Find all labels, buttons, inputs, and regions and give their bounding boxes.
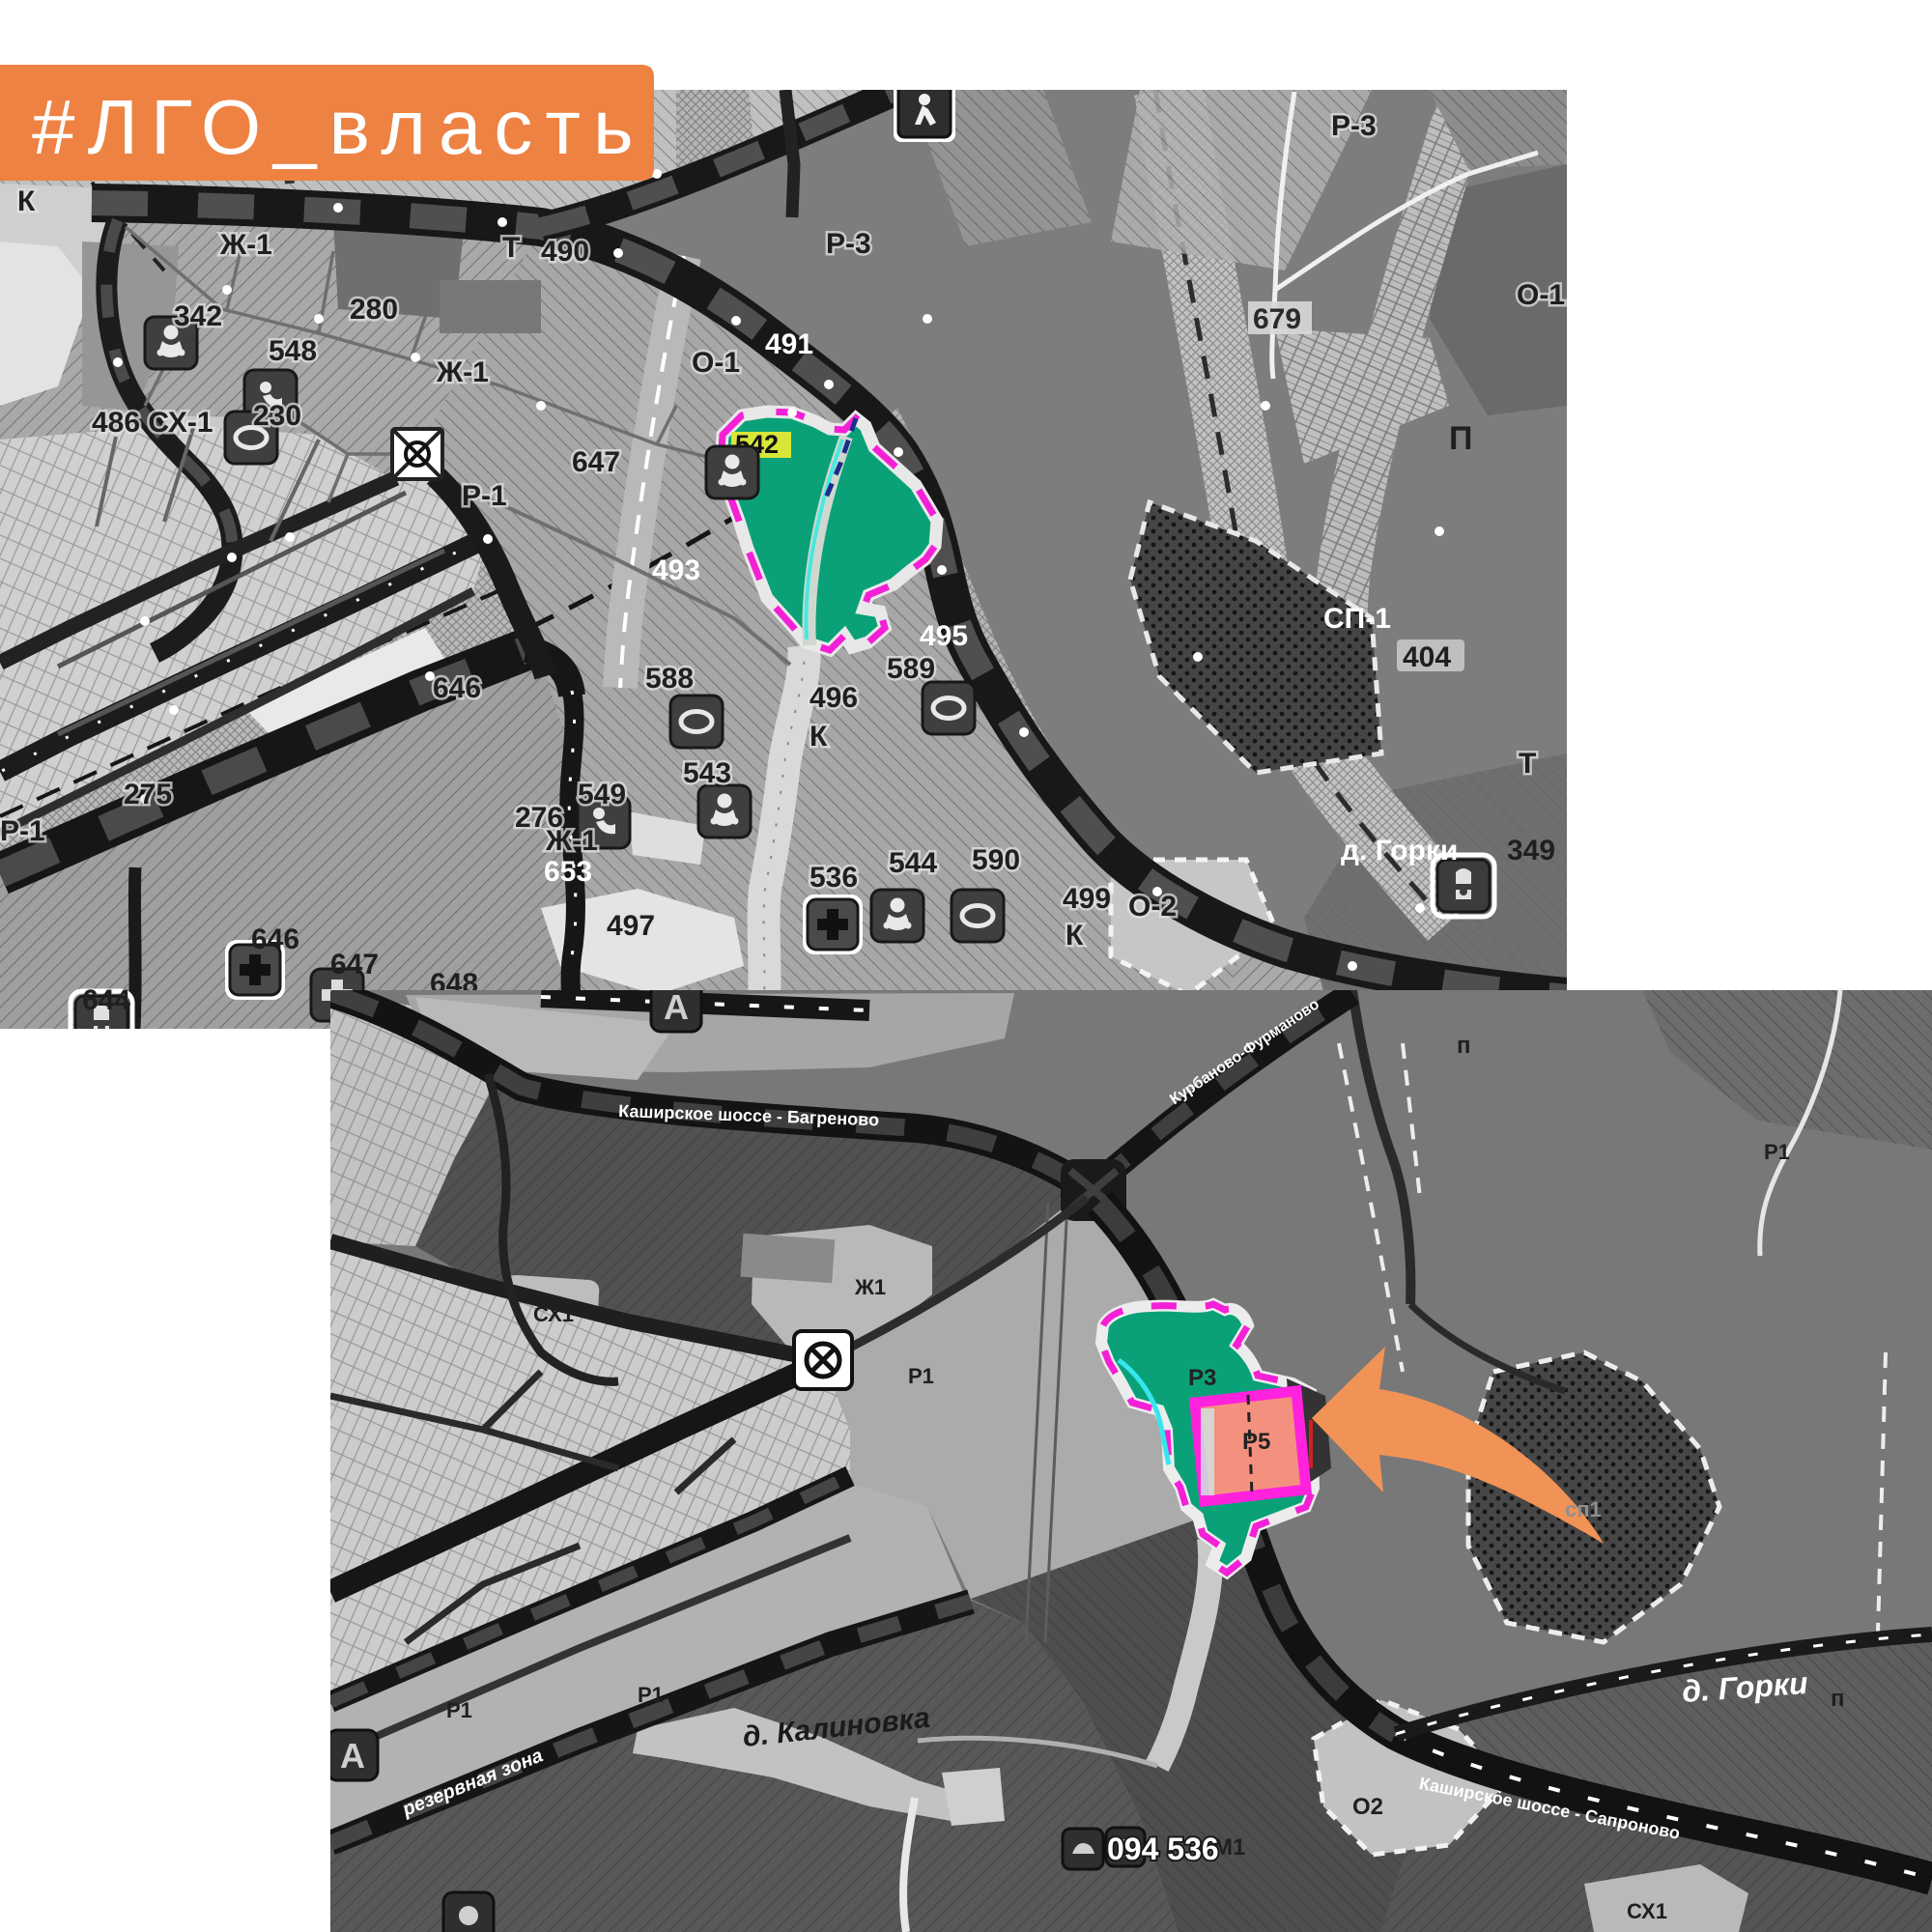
svg-text:486 СХ-1: 486 СХ-1 (92, 407, 213, 439)
svg-text:490: 490 (541, 236, 589, 268)
svg-text:Ж-1: Ж-1 (545, 825, 598, 857)
svg-text:Р-1: Р-1 (462, 480, 507, 512)
svg-text:230: 230 (253, 400, 301, 432)
svg-text:548: 548 (269, 335, 317, 367)
svg-text:499: 499 (1063, 883, 1111, 915)
svg-text:644: 644 (82, 984, 130, 1016)
svg-text:543: 543 (683, 757, 731, 789)
svg-text:536: 536 (810, 862, 858, 894)
svg-text:647: 647 (572, 446, 620, 478)
svg-text:549: 549 (578, 779, 626, 810)
svg-text:#ЛГО_власть: #ЛГО_власть (32, 84, 646, 170)
svg-text:589: 589 (887, 653, 935, 685)
svg-text:П: П (1449, 420, 1472, 457)
svg-text:Р5: Р5 (1242, 1429, 1270, 1455)
svg-text:679: 679 (1253, 303, 1301, 335)
svg-text:Р1: Р1 (638, 1683, 664, 1707)
svg-text:495: 495 (920, 620, 968, 652)
svg-text:Р-1: Р-1 (0, 815, 45, 847)
svg-text:590: 590 (972, 844, 1020, 876)
svg-text:Ж-1: Ж-1 (436, 356, 489, 388)
svg-text:491: 491 (765, 328, 813, 360)
svg-text:Т: Т (1519, 748, 1536, 780)
svg-text:588: 588 (645, 663, 694, 695)
svg-text:К: К (810, 721, 828, 753)
svg-text:О-1: О-1 (1517, 279, 1565, 311)
svg-text:Р1: Р1 (1764, 1140, 1790, 1164)
svg-text:349: 349 (1507, 835, 1555, 867)
svg-text:647: 647 (330, 949, 379, 980)
svg-text:646: 646 (433, 672, 481, 704)
svg-text:п: п (1831, 1686, 1845, 1712)
svg-text:497: 497 (607, 910, 655, 942)
svg-text:544: 544 (889, 847, 937, 879)
svg-text:653: 653 (544, 856, 592, 888)
svg-text:К: К (17, 185, 36, 217)
svg-text:п: п (1457, 1033, 1471, 1059)
svg-text:Ж-1: Ж-1 (219, 229, 272, 261)
svg-text:д. Горки: д. Горки (1341, 835, 1458, 867)
svg-text:Р1: Р1 (446, 1698, 472, 1722)
svg-text:Т: Т (502, 232, 520, 264)
svg-text:342: 342 (174, 300, 222, 332)
svg-text:493: 493 (652, 554, 700, 586)
svg-text:СХ1: СХ1 (1627, 1899, 1667, 1923)
svg-text:496: 496 (810, 682, 858, 714)
svg-text:Р1: Р1 (908, 1364, 934, 1388)
svg-text:СХ1: СХ1 (533, 1302, 574, 1326)
svg-text:094 536: 094 536 (1107, 1832, 1219, 1866)
svg-text:275: 275 (124, 779, 172, 810)
svg-text:О2: О2 (1352, 1794, 1383, 1820)
svg-text:Ж1: Ж1 (854, 1275, 886, 1299)
svg-text:СП-1: СП-1 (1323, 603, 1391, 635)
svg-text:404: 404 (1403, 641, 1451, 673)
svg-text:Р3: Р3 (1188, 1365, 1216, 1391)
svg-text:сп1: сп1 (1565, 1497, 1602, 1521)
svg-text:Р-3: Р-3 (826, 228, 871, 260)
svg-text:О-1: О-1 (692, 347, 740, 379)
svg-text:О-2: О-2 (1128, 891, 1177, 923)
svg-text:Р-3: Р-3 (1331, 110, 1377, 142)
svg-text:646: 646 (251, 923, 299, 955)
svg-text:280: 280 (350, 294, 398, 326)
svg-text:К: К (1065, 920, 1084, 952)
